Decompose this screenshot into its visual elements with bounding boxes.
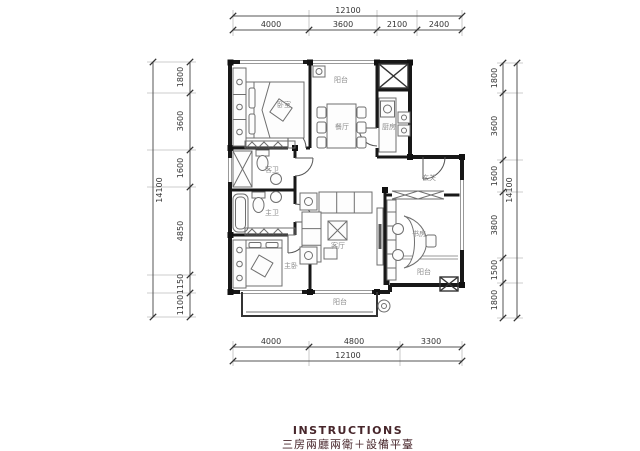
dimension-chain-left: 14100 1800 3600 1600 4850 1150 1100 (147, 59, 196, 320)
sink (271, 174, 282, 185)
equipment-platform (379, 64, 408, 88)
dim-top-seg-1: 4000 (261, 20, 281, 29)
floor-drain (378, 300, 390, 312)
dim-left-seg-1: 1800 (176, 67, 185, 87)
dim-left-seg-3: 1600 (176, 158, 185, 178)
dimension-chain-right: 1800 3600 1600 3800 1500 1800 14100 (490, 60, 523, 321)
sofa (319, 192, 372, 213)
dim-right-seg-3: 1600 (490, 166, 499, 186)
label-dining: 餐厅 (335, 122, 349, 131)
dim-top-seg-4: 2400 (429, 20, 449, 29)
title-block: INSTRUCTIONS 三房兩廳兩衛＋設備平臺 (282, 424, 414, 451)
label-balcony-bottom: 阳台 (333, 297, 347, 306)
dim-left-seg-5: 1150 (176, 274, 185, 294)
label-balcony-top: 阳台 (334, 75, 348, 84)
label-kitchen: 厨房 (382, 122, 396, 131)
label-master-bath: 主卫 (265, 208, 279, 217)
living-furniture (300, 192, 383, 265)
label-foyer: 玄关 (422, 173, 436, 182)
dim-left-seg-6: 1100 (176, 295, 185, 315)
dimension-chain-top: 12100 4000 3600 2100 2400 (230, 6, 465, 36)
stove (398, 112, 410, 123)
label-master-bedroom: 主卧 (284, 261, 298, 270)
sliding-door (392, 191, 444, 199)
label-balcony-right: 阳台 (417, 267, 431, 276)
tv (379, 224, 382, 249)
bedroom-furniture (233, 68, 304, 146)
instructions-subheading: 三房兩廳兩衛＋設備平臺 (282, 437, 414, 451)
dim-right-seg-2: 3600 (490, 116, 499, 136)
dim-bottom-total: 12100 (335, 351, 360, 360)
balcony-bottom (242, 292, 390, 316)
dim-top-seg-3: 2100 (387, 20, 407, 29)
dim-left-total: 14100 (155, 177, 164, 202)
dim-top-total: 12100 (335, 6, 360, 15)
dimension-chain-bottom: 4000 4800 3300 12100 (230, 337, 465, 366)
master-bedroom-furniture (233, 240, 282, 288)
floor-plan-page: 12100 4000 3600 2100 2400 4000 4800 3300… (0, 0, 640, 451)
instructions-heading: INSTRUCTIONS (293, 424, 403, 437)
balcony-top-planter (313, 66, 325, 77)
sink (271, 192, 282, 203)
dim-right-seg-5: 1500 (490, 260, 499, 280)
curved-desk (404, 216, 427, 268)
dim-top-seg-2: 3600 (333, 20, 353, 29)
dim-right-total: 14100 (505, 177, 514, 202)
floor-plan-canvas: 12100 4000 3600 2100 2400 4000 4800 3300… (0, 0, 640, 451)
dim-bottom-seg-1: 4000 (261, 337, 281, 346)
label-guest-bath: 客卫 (265, 165, 279, 174)
dim-left-seg-2: 3600 (176, 111, 185, 131)
label-bedroom: 卧室 (277, 100, 291, 109)
dim-right-seg-4: 3800 (490, 215, 499, 235)
label-study: 书房 (412, 229, 426, 238)
dim-left-seg-4: 4850 (176, 221, 185, 241)
dim-right-seg-1: 1800 (490, 68, 499, 88)
label-living: 客厅 (331, 241, 345, 250)
dim-bottom-seg-2: 4800 (344, 337, 364, 346)
desk-chair (393, 224, 404, 235)
dim-right-seg-6: 1800 (490, 290, 499, 310)
master-bath-furniture (233, 192, 295, 236)
dim-bottom-seg-3: 3300 (421, 337, 441, 346)
